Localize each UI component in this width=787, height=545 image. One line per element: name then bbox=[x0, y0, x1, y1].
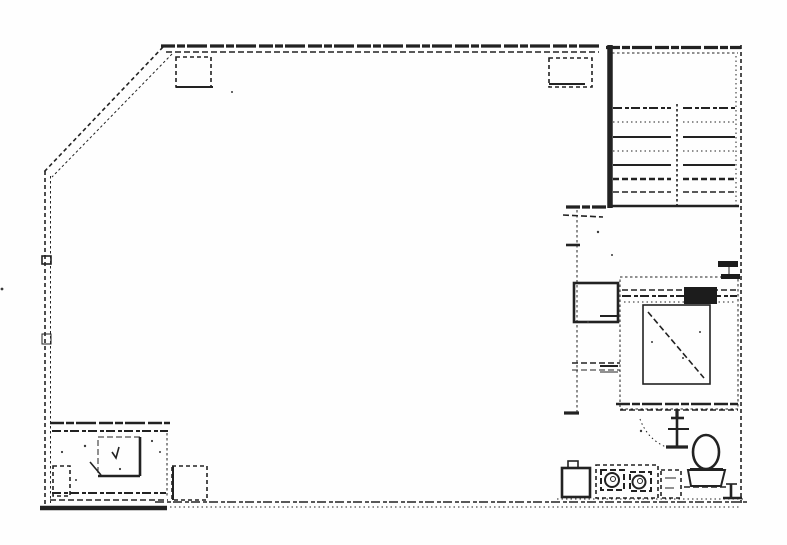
chamfer-wall-inner bbox=[52, 54, 172, 177]
scan-noise bbox=[1, 288, 4, 291]
sink-right-drain bbox=[638, 479, 643, 484]
equipment-check-mark bbox=[112, 447, 119, 458]
sink-right-rim bbox=[633, 476, 646, 489]
cabinet-right bbox=[661, 470, 681, 498]
scan-noise bbox=[75, 479, 77, 481]
scan-noise bbox=[651, 341, 653, 343]
scan-noise bbox=[61, 451, 63, 453]
scan-noise bbox=[597, 231, 599, 233]
scan-noise bbox=[231, 91, 233, 93]
equipment-unit bbox=[98, 437, 140, 476]
chamfer-wall-outer bbox=[44, 47, 163, 172]
sink-left-rim bbox=[605, 473, 619, 487]
elevator-cab-diagonal bbox=[648, 312, 704, 378]
column-top-right bbox=[549, 58, 592, 87]
sink-left-drain bbox=[611, 477, 616, 482]
scan-noise bbox=[640, 430, 642, 432]
wall-stub-lower bbox=[721, 274, 740, 279]
toilet-bowl bbox=[693, 435, 719, 469]
column-top-left bbox=[176, 57, 211, 87]
floor-plan bbox=[0, 0, 787, 545]
scan-noise bbox=[159, 451, 161, 453]
wall-stub-upper bbox=[718, 261, 738, 267]
elevator-door-hatch bbox=[684, 287, 717, 304]
mop-sink bbox=[562, 468, 590, 497]
column-bottom-middle bbox=[172, 466, 207, 500]
small-cabinet bbox=[53, 466, 70, 496]
scan-noise bbox=[151, 440, 153, 442]
scan-noise bbox=[699, 331, 701, 333]
equipment-leader-line bbox=[90, 462, 101, 475]
door-swing-arc bbox=[640, 419, 669, 448]
toilet-tank bbox=[688, 470, 725, 486]
scan-noise bbox=[119, 468, 121, 470]
scan-noise bbox=[84, 445, 86, 447]
scan-noise bbox=[587, 321, 589, 323]
left-wall-joint-upper bbox=[42, 256, 51, 264]
scan-noise bbox=[682, 357, 684, 359]
floor-plan-canvas bbox=[0, 0, 787, 545]
scan-noise bbox=[611, 254, 613, 256]
left-wall-joint-lower bbox=[42, 334, 51, 344]
elevator-cab bbox=[643, 305, 710, 384]
stair-landing-stub-lower bbox=[563, 215, 603, 217]
